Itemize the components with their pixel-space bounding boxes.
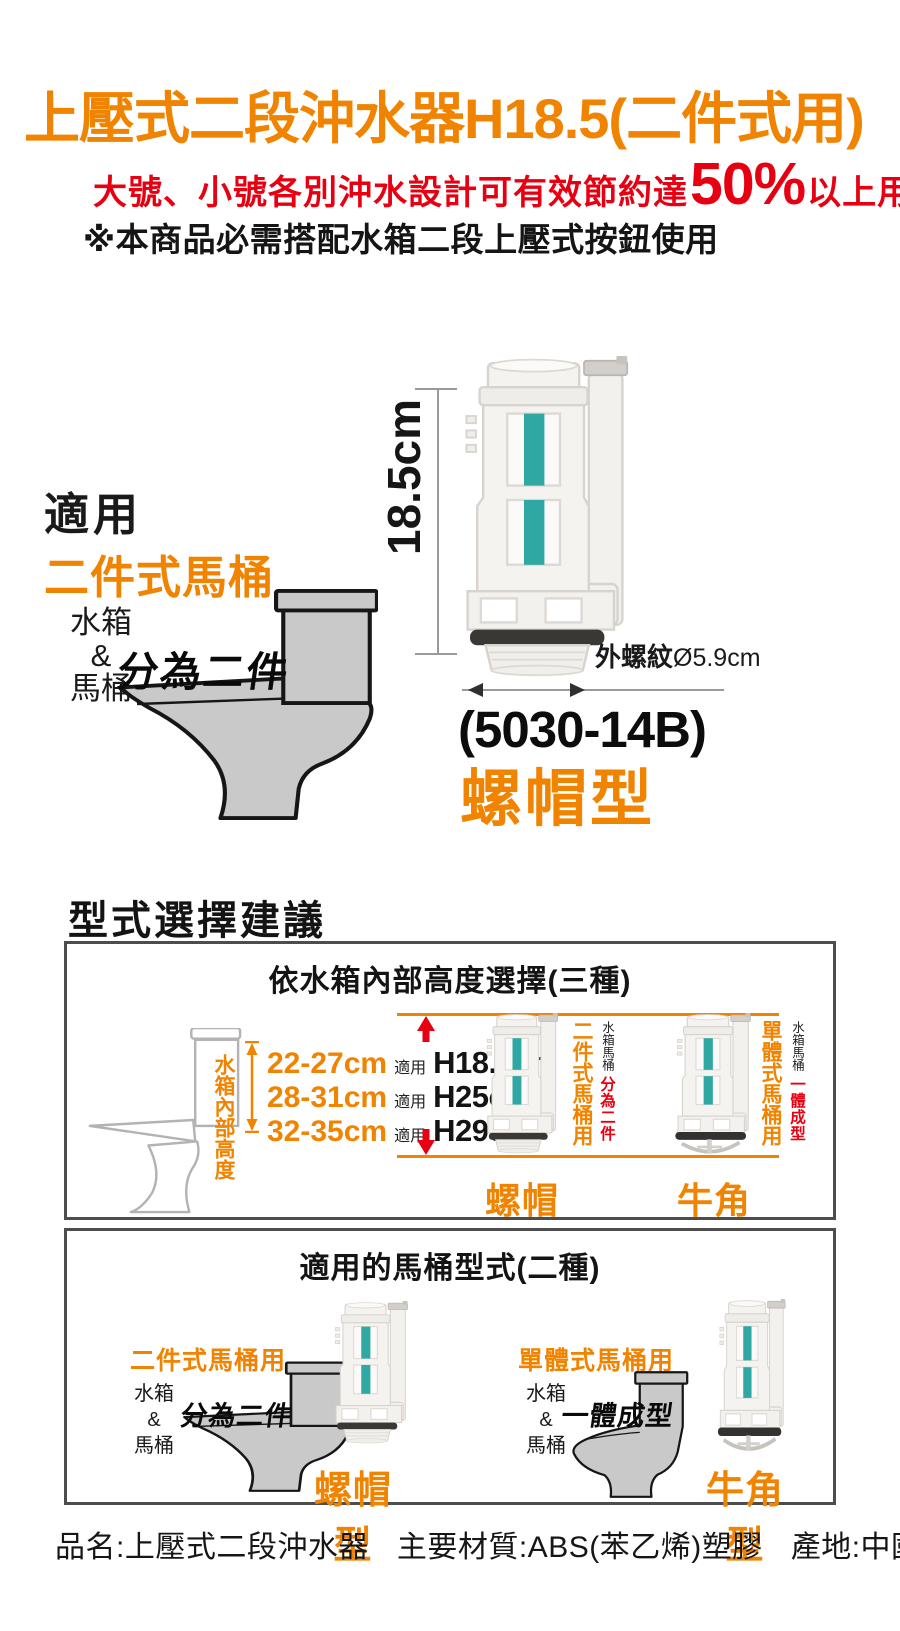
height-dimension-line bbox=[437, 389, 439, 654]
one-body-label: 一體成型 bbox=[559, 1394, 676, 1433]
flush-valve-nut-image bbox=[481, 1013, 565, 1155]
tank-height-range: 32-35cm bbox=[267, 1115, 387, 1149]
thread-spec-diameter: Ø5.9cm bbox=[673, 644, 761, 672]
tank-inner-height-label: 水箱內部高度 bbox=[208, 1054, 238, 1180]
product-material: 主要材質:ABS(苯乙烯)塑膠 bbox=[397, 1522, 763, 1566]
dimension-tick bbox=[415, 388, 457, 390]
one-body-note: 一體成型 bbox=[785, 1076, 807, 1142]
tank-height-range: 28-31cm bbox=[267, 1081, 387, 1115]
benefit-text: 以上用水 bbox=[807, 165, 900, 214]
arrow-up-icon bbox=[417, 1016, 435, 1042]
product-name: 品名:上壓式二段沖水器 bbox=[55, 1522, 369, 1566]
section-heading: 型式選擇建議 bbox=[68, 888, 326, 946]
box-title: 依水箱內部高度選擇(三種) bbox=[67, 956, 833, 1000]
fit-title: 適用 bbox=[44, 478, 142, 543]
arrow-down-icon bbox=[417, 1129, 435, 1155]
valve-type-label: 螺帽型 bbox=[460, 748, 655, 838]
two-piece-label: 分為二件 bbox=[178, 1394, 295, 1433]
split-note: 分為二件 bbox=[595, 1076, 617, 1142]
two-piece-use-label: 二件式馬桶用 bbox=[566, 1020, 596, 1146]
tank-bowl-note: 水箱馬桶 bbox=[788, 1021, 807, 1071]
two-piece-toilet-illustration bbox=[100, 588, 378, 822]
tank-bowl-note: 水箱馬桶 bbox=[598, 1021, 617, 1071]
product-origin: 產地:中國 bbox=[791, 1522, 900, 1566]
tank-height-selection-box: 依水箱內部高度選擇(三種) 水箱內部高度 22-27cm 適用 H18.5cm … bbox=[64, 941, 836, 1220]
thread-spec-text: 外螺紋 bbox=[595, 642, 673, 672]
flush-valve-horn-image bbox=[714, 1299, 792, 1461]
page-title: 上壓式二段沖水器H18.5(二件式用) bbox=[24, 74, 864, 155]
dimension-arrow-right-icon bbox=[570, 683, 585, 697]
two-piece-label: 分為二件 bbox=[114, 638, 294, 698]
tank-height-arrow-icon bbox=[243, 1041, 261, 1133]
benefit-text: 大號、小號各別沖水設計可有效節約達 bbox=[93, 165, 688, 214]
fits-label: 適用 bbox=[394, 1054, 426, 1078]
product-infographic: 上壓式二段沖水器H18.5(二件式用) 大號、小號各別沖水設計可有效節約達 50… bbox=[0, 0, 900, 1631]
one-piece-use-label: 單體式馬桶用 bbox=[755, 1020, 785, 1146]
flush-valve-nut-image bbox=[329, 1301, 415, 1445]
fits-label: 適用 bbox=[394, 1088, 426, 1112]
tank-height-range: 22-27cm bbox=[267, 1047, 387, 1081]
flush-valve-horn-image bbox=[671, 1013, 758, 1163]
one-piece-toilet-illustration bbox=[556, 1369, 690, 1499]
product-spec-line: 品名:上壓式二段沖水器 主要材質:ABS(苯乙烯)塑膠 產地:中國 bbox=[55, 1522, 900, 1566]
thread-spec-label: 外螺紋Ø5.9cm bbox=[595, 637, 761, 674]
benefit-percent: 50% bbox=[690, 150, 805, 218]
benefit-line: 大號、小號各別沖水設計可有效節約達 50% 以上用水 bbox=[93, 150, 900, 218]
dimension-tick bbox=[415, 653, 457, 655]
usage-note: ※本商品必需搭配水箱二段上壓式按鈕使用 bbox=[83, 213, 719, 261]
flush-valve-nut-image bbox=[452, 356, 644, 680]
box-title: 適用的馬桶型式(二種) bbox=[67, 1243, 833, 1287]
height-dimension-label: 18.5cm bbox=[377, 399, 431, 555]
toilet-type-box: 適用的馬桶型式(二種) 二件式馬桶用 水箱 & 馬桶 分為二件 螺帽型 單體式馬… bbox=[64, 1228, 836, 1505]
diameter-dimension-line bbox=[462, 689, 724, 691]
dimension-arrow-left-icon bbox=[468, 683, 483, 697]
